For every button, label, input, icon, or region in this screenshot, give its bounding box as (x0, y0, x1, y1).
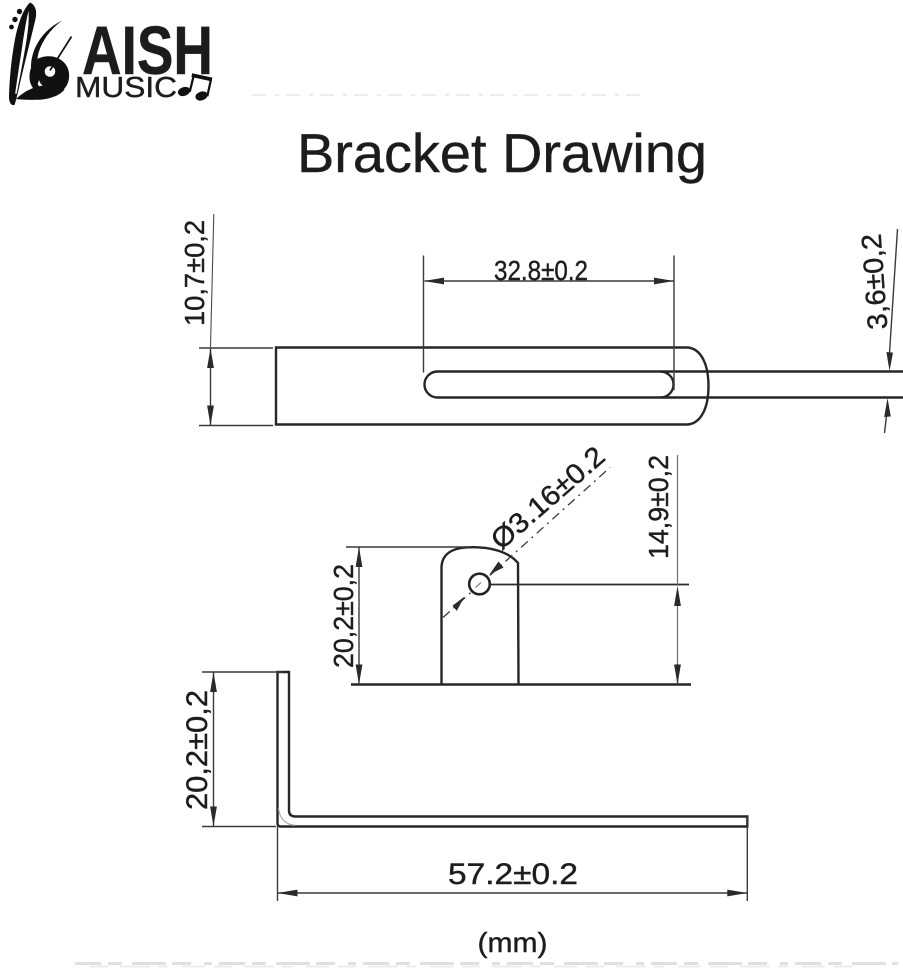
svg-text:MUSIC: MUSIC (75, 72, 177, 104)
svg-text:Bracket Drawing: Bracket Drawing (297, 122, 707, 184)
svg-text:20,2±0,2: 20,2±0,2 (328, 564, 359, 668)
svg-text:10,7±0,2: 10,7±0,2 (179, 220, 210, 326)
svg-text:(mm): (mm) (478, 927, 548, 958)
svg-text:32.8±0.2: 32.8±0.2 (494, 255, 588, 286)
svg-text:14,9±0,2: 14,9±0,2 (643, 455, 674, 559)
svg-text:20,2±0,2: 20,2±0,2 (181, 690, 214, 810)
svg-text:57.2±0.2: 57.2±0.2 (448, 858, 578, 891)
